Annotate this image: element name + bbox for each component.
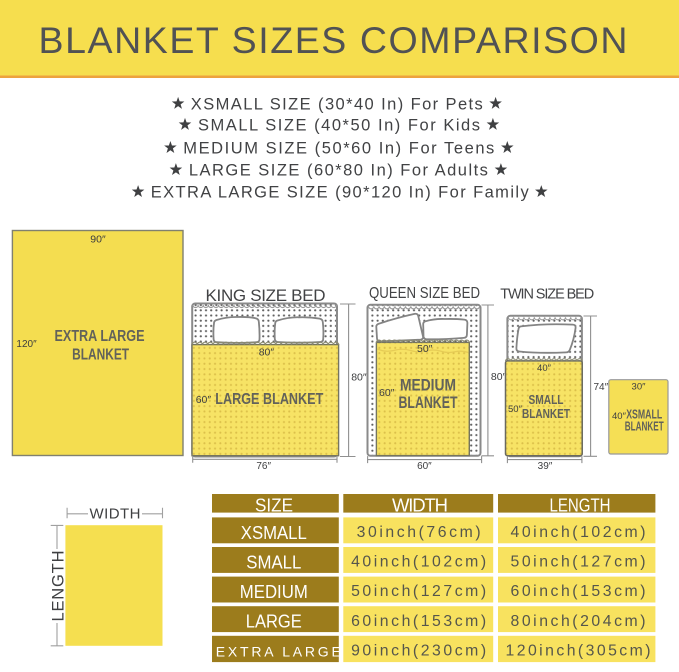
svg-text:MEDIUM: MEDIUM bbox=[240, 581, 308, 602]
svg-text:74″: 74″ bbox=[594, 382, 609, 393]
svg-text:120″: 120″ bbox=[16, 339, 37, 350]
svg-text:60″: 60″ bbox=[417, 461, 432, 472]
svg-text:MEDIUM: MEDIUM bbox=[400, 376, 456, 394]
svg-text:120inch(305cm): 120inch(305cm) bbox=[506, 642, 651, 659]
svg-text:EXTRA LARGE: EXTRA LARGE bbox=[55, 328, 145, 345]
svg-text:60″: 60″ bbox=[379, 387, 395, 399]
svg-text:LARGE SIZE (60*80 In) For Adul: LARGE SIZE (60*80 In) For Adults bbox=[189, 162, 488, 180]
svg-text:90″: 90″ bbox=[90, 234, 106, 246]
svg-text:EXTRA LARGE: EXTRA LARGE bbox=[216, 643, 341, 659]
svg-text:30inch(76cm): 30inch(76cm) bbox=[357, 524, 481, 541]
svg-text:XSMALL: XSMALL bbox=[241, 522, 307, 543]
svg-text:LARGE: LARGE bbox=[246, 611, 302, 632]
svg-text:BLANKET SIZES COMPARISON: BLANKET SIZES COMPARISON bbox=[39, 19, 628, 61]
svg-text:WIDTH: WIDTH bbox=[392, 494, 448, 515]
svg-text:39″: 39″ bbox=[538, 461, 553, 472]
svg-text:SMALL: SMALL bbox=[246, 551, 301, 572]
svg-text:KING SIZE BED: KING SIZE BED bbox=[206, 286, 326, 305]
svg-text:BLANKET: BLANKET bbox=[625, 420, 664, 434]
svg-text:LENGTH: LENGTH bbox=[550, 494, 611, 515]
svg-text:BLANKET: BLANKET bbox=[72, 347, 129, 364]
svg-text:LARGE BLANKET: LARGE BLANKET bbox=[215, 391, 323, 408]
svg-text:WIDTH: WIDTH bbox=[90, 505, 141, 522]
svg-text:80″: 80″ bbox=[491, 371, 507, 383]
svg-text:EXTRA LARGE SIZE (90*120 In) F: EXTRA LARGE SIZE (90*120 In) For Family bbox=[151, 184, 530, 202]
svg-text:SMALL SIZE (40*50 In) For Kids: SMALL SIZE (40*50 In) For Kids bbox=[198, 116, 480, 134]
svg-text:30″: 30″ bbox=[632, 382, 647, 393]
svg-text:XSMALL SIZE (30*40 In) For Pet: XSMALL SIZE (30*40 In) For Pets bbox=[191, 95, 483, 113]
svg-text:SIZE: SIZE bbox=[255, 494, 293, 515]
svg-text:40″: 40″ bbox=[537, 363, 552, 374]
svg-text:50″: 50″ bbox=[417, 343, 433, 355]
svg-text:LENGTH: LENGTH bbox=[50, 551, 68, 622]
svg-text:80″: 80″ bbox=[259, 347, 275, 359]
svg-text:TWIN SIZE BED: TWIN SIZE BED bbox=[500, 286, 594, 302]
svg-text:76″: 76″ bbox=[256, 461, 271, 472]
svg-text:BLANKET: BLANKET bbox=[399, 394, 458, 412]
svg-text:80″: 80″ bbox=[351, 372, 367, 384]
svg-text:SMALL: SMALL bbox=[529, 393, 564, 407]
svg-text:50″: 50″ bbox=[508, 404, 523, 415]
svg-text:QUEEN SIZE BED: QUEEN SIZE BED bbox=[369, 285, 480, 302]
svg-text:MEDIUM SIZE (50*60 In) For Tee: MEDIUM SIZE (50*60 In) For Teens bbox=[183, 139, 494, 157]
svg-text:60″: 60″ bbox=[196, 394, 212, 406]
svg-text:BLANKET: BLANKET bbox=[522, 407, 570, 421]
